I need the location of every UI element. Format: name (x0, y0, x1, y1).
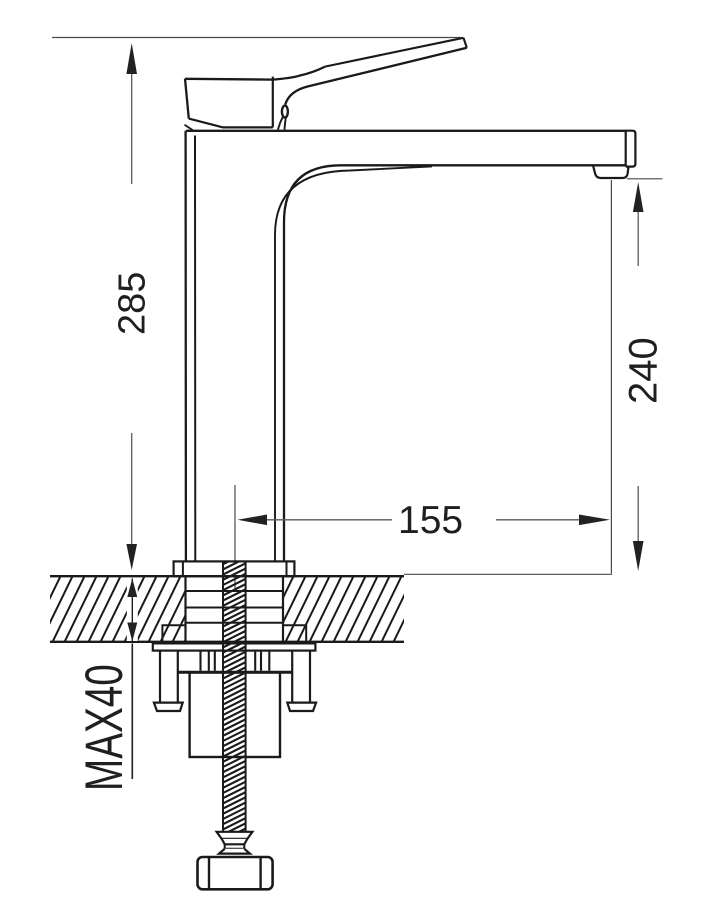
svg-text:155: 155 (398, 499, 463, 542)
svg-text:240: 240 (622, 337, 666, 404)
svg-text:285: 285 (112, 272, 154, 335)
svg-text:MAX40: MAX40 (74, 664, 133, 791)
